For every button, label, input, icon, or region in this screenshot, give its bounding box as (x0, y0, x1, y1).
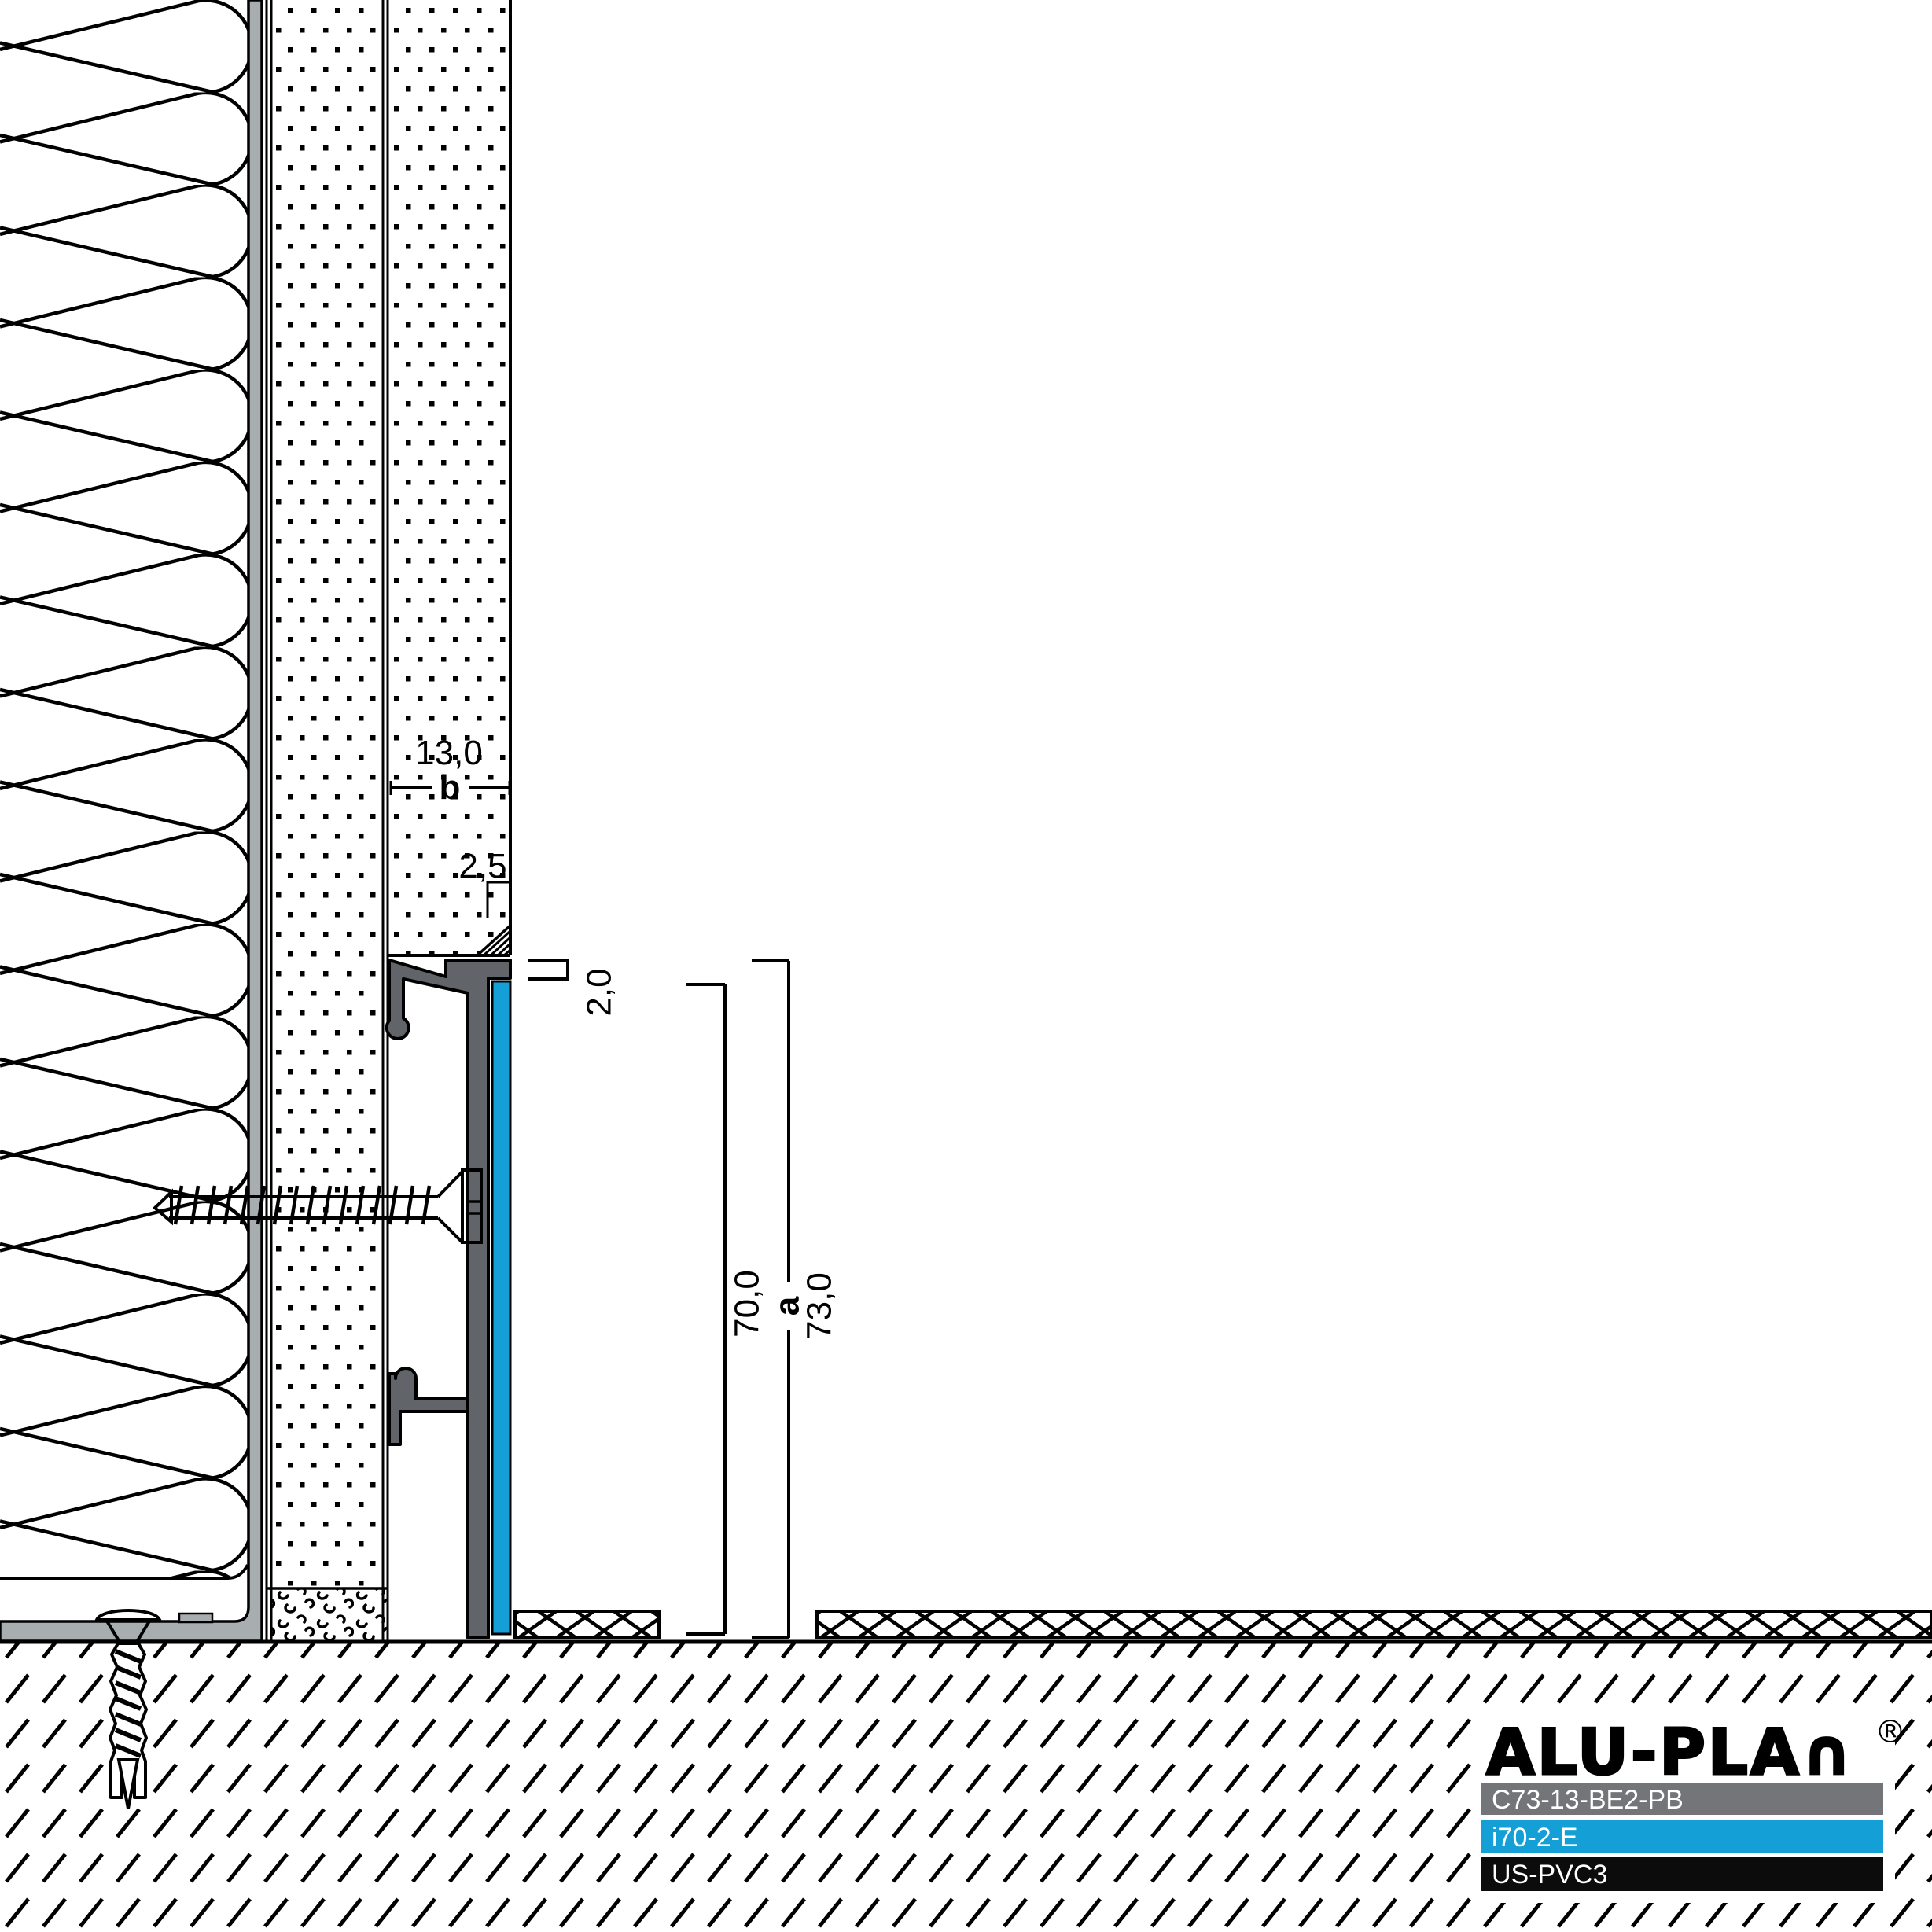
dimension-edge-2 (528, 960, 568, 979)
dim-20-label: 2,0 (580, 968, 619, 1016)
dim-73-label: 73,0 (800, 1272, 839, 1340)
insert-strip (492, 981, 510, 1634)
screed-edge-strip-left (515, 1611, 659, 1638)
screed-edge-strip-right (817, 1611, 1932, 1638)
dim-25-label: 2,5 (458, 847, 506, 885)
dimension-70 (686, 984, 725, 1634)
anchor-head (97, 1610, 160, 1620)
dim-b-label: b (440, 768, 461, 807)
title-block: ALU-PLA∩ ® C73-13-BE2-PB i70-2-E US-PVC3 (1474, 1708, 1906, 1903)
profile-lower-clip (389, 1368, 468, 1444)
angle-nub (179, 1614, 212, 1622)
screw-threads (171, 1184, 436, 1226)
plaster-board-layer (388, 0, 510, 955)
section-drawing: 13,0 b 2,5 (0, 0, 1932, 1932)
technical-drawing-page: 13,0 b 2,5 (0, 0, 1932, 1932)
adhesive-bed (272, 1589, 387, 1641)
insulation-layer (0, 0, 248, 1578)
legend-code-profile: C73-13-BE2-PB (1492, 1785, 1684, 1815)
legend-code-insert: i70-2-E (1492, 1823, 1578, 1853)
brand-logo: ALU-PLA∩ (1486, 1716, 1855, 1789)
registered-trademark-icon: ® (1875, 1714, 1906, 1750)
dim-70-label: 70,0 (728, 1270, 767, 1338)
legend-code-angle: US-PVC3 (1492, 1860, 1607, 1890)
render-layer (267, 0, 388, 1642)
dim-13-label: 13,0 (415, 734, 483, 772)
